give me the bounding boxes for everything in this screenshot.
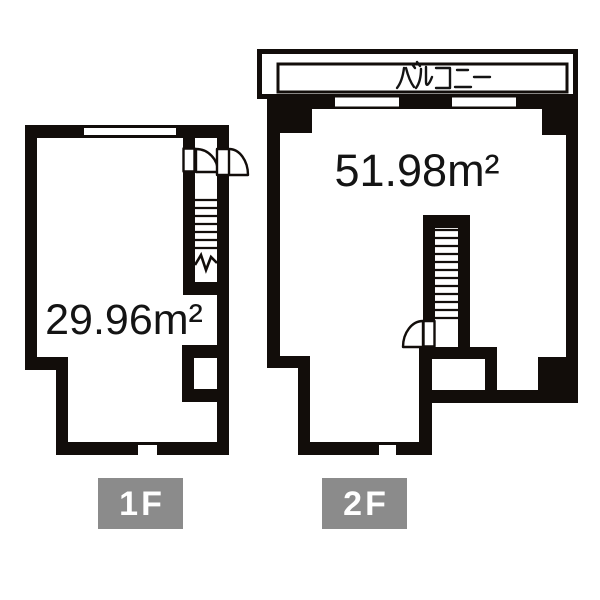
1f-wall-right-lower bbox=[217, 172, 229, 455]
1f-stair-wall-inner bbox=[183, 172, 195, 295]
2f-floor-badge-label: 2F bbox=[343, 485, 389, 523]
2f-corner-block-bottomright bbox=[538, 357, 578, 403]
1f-stair-wall-top bbox=[183, 138, 195, 148]
2f-wall-top bbox=[267, 95, 578, 109]
2f-wall-bottom bbox=[298, 442, 432, 455]
2f-window-top-right bbox=[452, 98, 516, 107]
2f-wall-left-upper bbox=[267, 95, 280, 368]
1f-stairs-icon bbox=[195, 200, 217, 248]
2f-area-label: 51.98m² bbox=[334, 145, 499, 196]
1f-window-bottom bbox=[138, 445, 157, 455]
2f-closet-wall-right bbox=[485, 347, 497, 403]
1f-stair-wall-bottom bbox=[183, 282, 217, 295]
2f-stair-wall-right bbox=[458, 215, 470, 348]
1f-wall-left-upper bbox=[25, 125, 37, 370]
2f-closet-wall-left bbox=[419, 347, 432, 403]
1f-interior-door-leaf bbox=[184, 149, 195, 172]
2f-wall-left-lower bbox=[298, 356, 310, 455]
1f-floor-badge-label: 1F bbox=[119, 485, 165, 523]
1f-area-label: 29.96m² bbox=[45, 296, 203, 344]
2f-window-bottom bbox=[379, 445, 396, 455]
floor-plan-canvas: 29.96m² 1F バルコニー bbox=[0, 0, 600, 600]
2f-stair-wall-left bbox=[423, 215, 435, 322]
floor-plan-page: 29.96m² 1F バルコニー bbox=[0, 0, 600, 600]
2f-wall-right bbox=[566, 95, 578, 403]
2f-window-top-left bbox=[335, 98, 399, 107]
2f-stair-door-leaf bbox=[424, 321, 435, 347]
1f-closet-wall-bottom bbox=[182, 389, 229, 402]
1f-wall-left-lower bbox=[56, 357, 68, 455]
1f-wall-right-above-entry bbox=[217, 125, 229, 149]
1f-window-top bbox=[84, 128, 176, 135]
